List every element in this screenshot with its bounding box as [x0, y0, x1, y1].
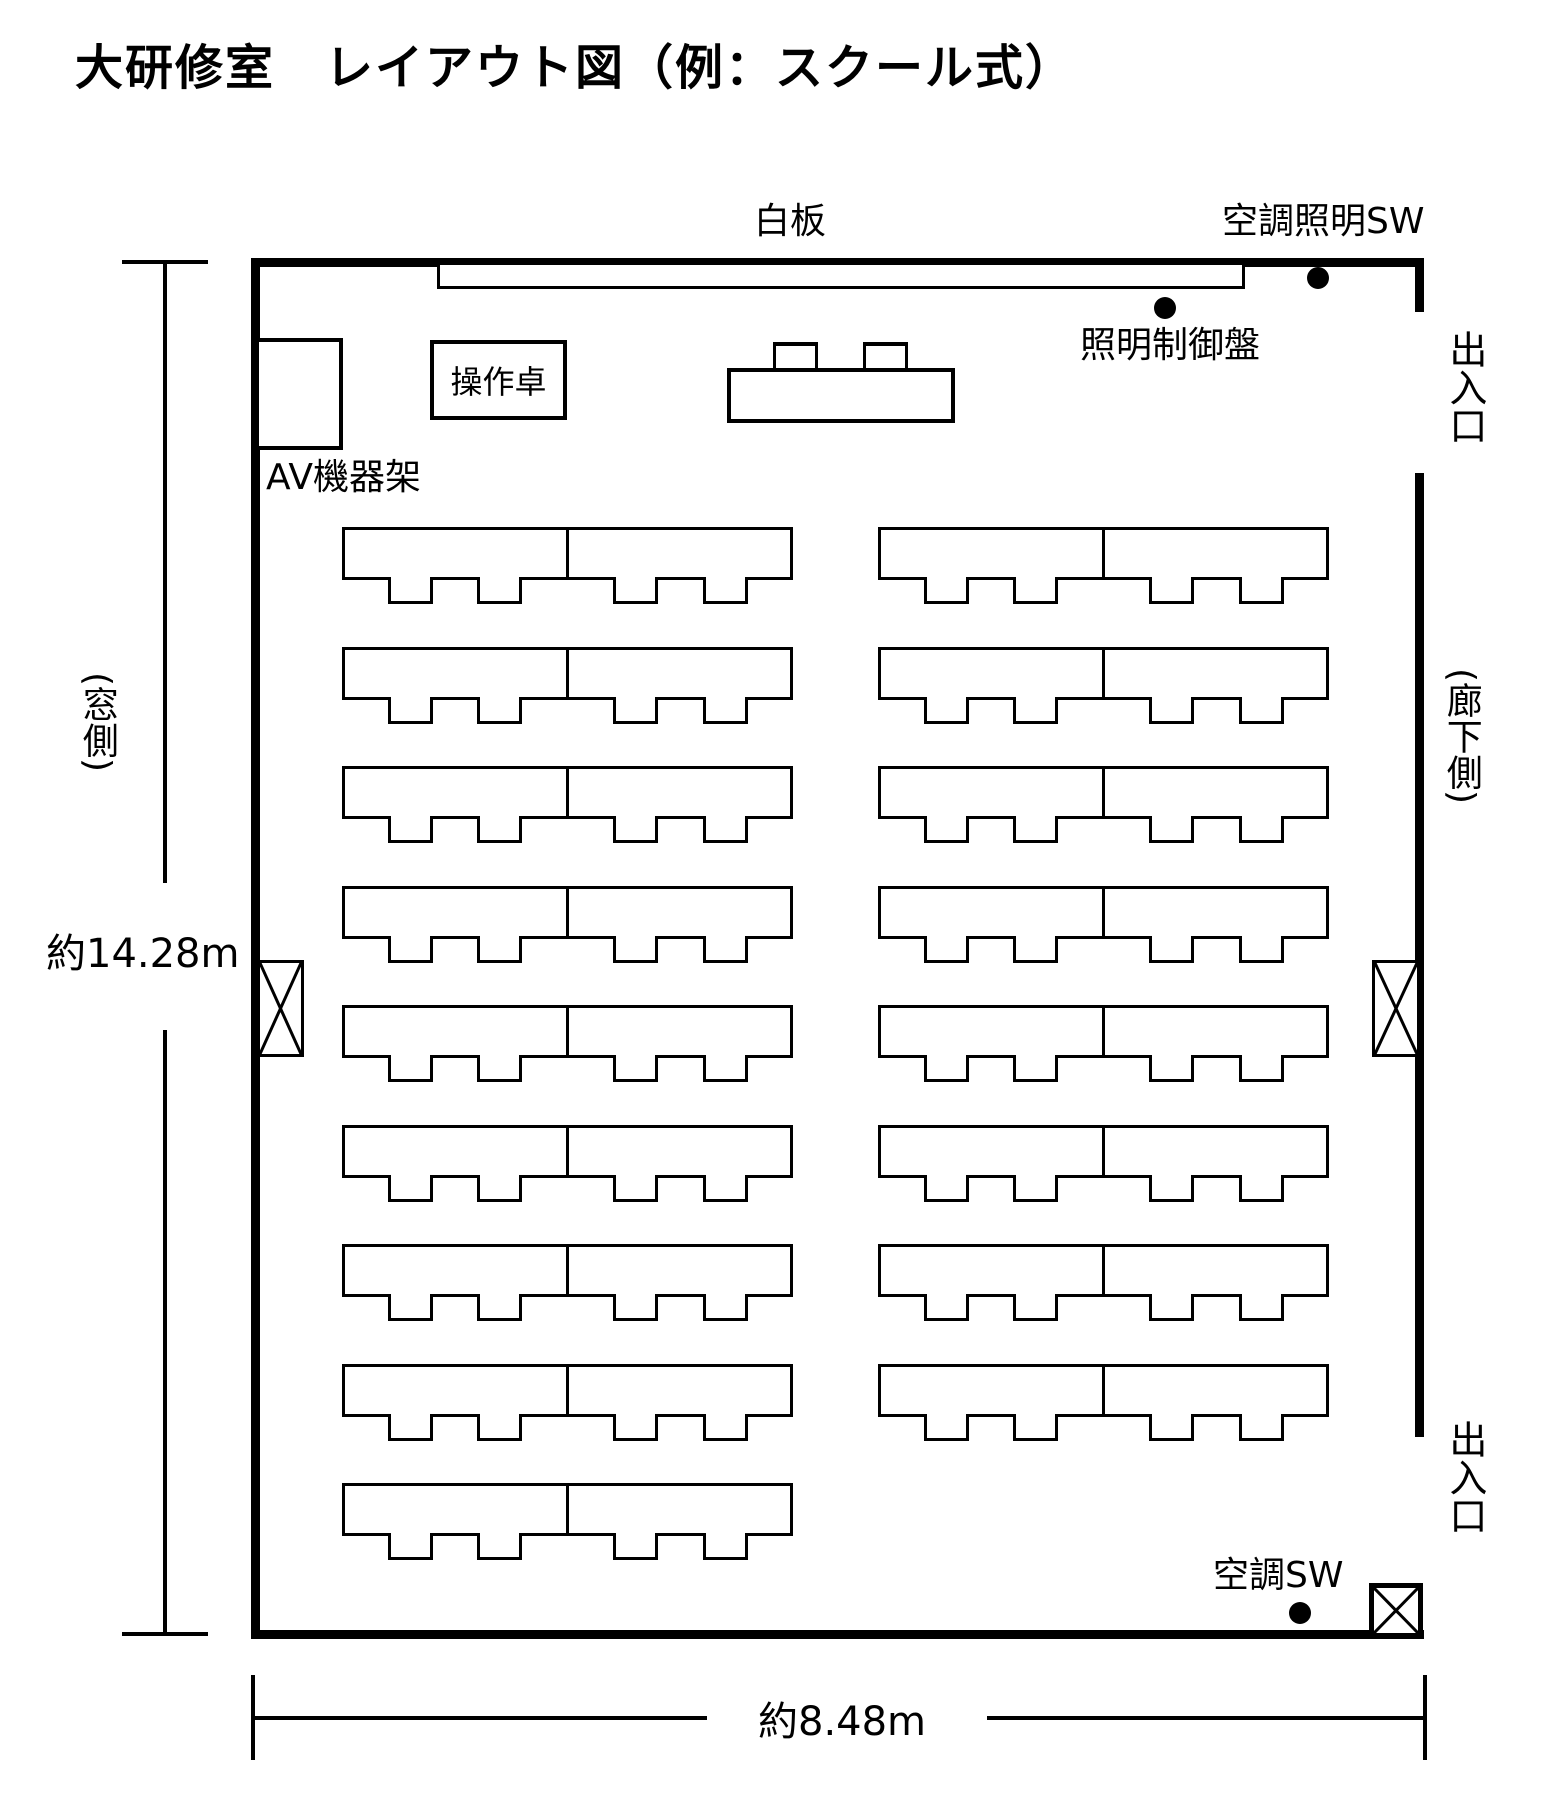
chair: [613, 1533, 658, 1560]
table-divider: [1102, 1128, 1105, 1175]
chair: [477, 1175, 522, 1202]
chair: [1239, 577, 1284, 604]
chair: [924, 577, 969, 604]
wall-right-upper: [1415, 258, 1424, 312]
chair: [388, 936, 433, 963]
student-table-pair: [342, 1364, 793, 1417]
chair: [1013, 1414, 1058, 1441]
height-dimension-label: 約14.28m: [46, 932, 239, 976]
chair: [1013, 697, 1058, 724]
student-table-pair: [878, 527, 1329, 580]
student-table-pair: [342, 766, 793, 819]
whiteboard: [437, 265, 1245, 289]
chair: [477, 1294, 522, 1321]
chair: [924, 697, 969, 724]
table-divider: [1102, 1008, 1105, 1055]
table-divider: [566, 889, 569, 936]
student-table-pair: [342, 647, 793, 700]
lighting-control-panel-label: 照明制御盤: [1080, 326, 1260, 366]
chair: [1013, 577, 1058, 604]
chair: [1013, 1055, 1058, 1082]
chair: [388, 1414, 433, 1441]
chair: [388, 1294, 433, 1321]
window-side-label: (窓側): [78, 672, 116, 772]
chair: [1149, 697, 1194, 724]
page-title: 大研修室 レイアウト図（例：スクール式）: [75, 42, 1075, 95]
table-divider: [566, 1008, 569, 1055]
av-rack: [255, 338, 343, 450]
chair: [1239, 1414, 1284, 1441]
hvac-lighting-switch-dot: [1307, 267, 1329, 289]
whiteboard-label: 白板: [754, 202, 826, 242]
table-divider: [1102, 650, 1105, 697]
hvac-switch-dot: [1289, 1602, 1311, 1624]
chair: [703, 816, 748, 843]
chair: [1149, 936, 1194, 963]
student-table-pair: [878, 766, 1329, 819]
chair: [1013, 1294, 1058, 1321]
chair: [703, 577, 748, 604]
presenter-chair: [773, 342, 818, 370]
chair: [613, 1055, 658, 1082]
table-divider: [1102, 889, 1105, 936]
chair: [388, 577, 433, 604]
chair: [1013, 816, 1058, 843]
table-divider: [566, 1486, 569, 1533]
chair: [1149, 1175, 1194, 1202]
hvac-lighting-switch-label: 空調照明SW: [1222, 202, 1424, 242]
lighting-control-panel-dot: [1154, 297, 1176, 319]
chair: [924, 1055, 969, 1082]
table-divider: [566, 650, 569, 697]
chair: [477, 1414, 522, 1441]
chair: [703, 1414, 748, 1441]
chair: [1013, 1175, 1058, 1202]
chair: [1239, 1055, 1284, 1082]
width-dimension-line-right: [987, 1716, 1425, 1720]
chair: [924, 816, 969, 843]
student-table-pair: [342, 1483, 793, 1536]
chair: [924, 1175, 969, 1202]
chair: [924, 936, 969, 963]
width-dimension-label: 約8.48m: [758, 1700, 926, 1744]
chair: [1149, 1294, 1194, 1321]
chair: [477, 1533, 522, 1560]
corridor-side-label: (廊下側): [1442, 668, 1480, 804]
control-console: 操作卓: [430, 340, 567, 420]
student-table-pair: [878, 1005, 1329, 1058]
chair: [924, 1294, 969, 1321]
presenter-chair: [863, 342, 908, 370]
chair: [613, 936, 658, 963]
student-table-pair: [878, 1244, 1329, 1297]
chair: [613, 816, 658, 843]
student-table-pair: [342, 1125, 793, 1178]
student-table-pair: [342, 527, 793, 580]
hvac-switch-label: 空調SW: [1213, 1556, 1343, 1596]
chair: [703, 1533, 748, 1560]
chair: [388, 1175, 433, 1202]
window-mark-right: [1372, 960, 1420, 1057]
table-divider: [566, 1367, 569, 1414]
table-divider: [566, 530, 569, 577]
chair: [477, 816, 522, 843]
student-table-pair: [878, 647, 1329, 700]
chair: [1239, 816, 1284, 843]
chair: [477, 577, 522, 604]
table-divider: [1102, 769, 1105, 816]
presenter-table: [727, 368, 955, 423]
chair: [1149, 1055, 1194, 1082]
table-divider: [566, 1247, 569, 1294]
wall-right-main: [1415, 473, 1424, 1437]
control-console-label: 操作卓: [434, 344, 563, 416]
chair: [477, 697, 522, 724]
chair: [1239, 697, 1284, 724]
table-divider: [1102, 1367, 1105, 1414]
chair: [613, 1175, 658, 1202]
chair: [613, 697, 658, 724]
window-mark-left: [257, 960, 304, 1057]
wall-left: [251, 258, 260, 1639]
chair: [477, 1055, 522, 1082]
student-table-pair: [342, 1244, 793, 1297]
student-table-pair: [878, 886, 1329, 939]
chair: [1149, 577, 1194, 604]
chair: [703, 1055, 748, 1082]
chair: [613, 1294, 658, 1321]
table-divider: [1102, 1247, 1105, 1294]
chair: [388, 1533, 433, 1560]
chair: [1239, 1175, 1284, 1202]
chair: [703, 1175, 748, 1202]
width-dimension-line-left: [253, 1716, 707, 1720]
door-mark-bottom-right: [1369, 1583, 1423, 1638]
chair: [703, 1294, 748, 1321]
table-divider: [1102, 530, 1105, 577]
table-divider: [566, 1128, 569, 1175]
chair: [1149, 1414, 1194, 1441]
width-dimension-tick-right: [1423, 1675, 1427, 1760]
student-table-pair: [342, 1005, 793, 1058]
chair: [924, 1414, 969, 1441]
height-dimension-line-lower: [163, 1030, 167, 1636]
student-table-pair: [878, 1364, 1329, 1417]
chair: [1149, 816, 1194, 843]
chair: [388, 697, 433, 724]
chair: [703, 697, 748, 724]
table-divider: [566, 769, 569, 816]
chair: [1013, 936, 1058, 963]
chair: [613, 577, 658, 604]
entrance-top-label: 出入口: [1444, 330, 1484, 444]
chair: [388, 816, 433, 843]
chair: [477, 936, 522, 963]
chair: [1239, 1294, 1284, 1321]
height-dimension-tick-bottom: [122, 1632, 208, 1636]
floor-plan: 大研修室 レイアウト図（例：スクール式） 白板 空調照明SW 照明制御盤 AV機…: [0, 0, 1560, 1800]
wall-bottom: [251, 1630, 1424, 1639]
chair: [388, 1055, 433, 1082]
height-dimension-line-upper: [163, 264, 167, 883]
student-table-pair: [878, 1125, 1329, 1178]
chair: [703, 936, 748, 963]
entrance-bottom-label: 出入口: [1444, 1420, 1484, 1534]
student-table-pair: [342, 886, 793, 939]
chair: [613, 1414, 658, 1441]
chair: [1239, 936, 1284, 963]
av-rack-label: AV機器架: [266, 458, 421, 498]
